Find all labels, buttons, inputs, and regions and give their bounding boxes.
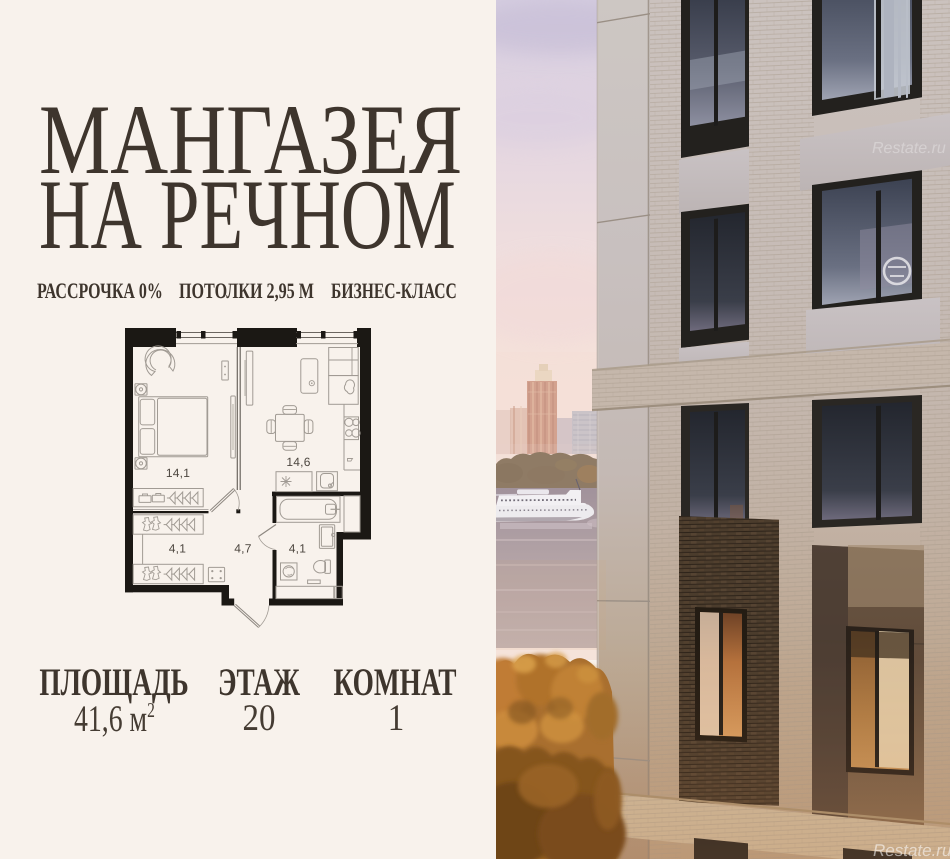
svg-text:4,7: 4,7	[234, 542, 252, 556]
svg-text:14,1: 14,1	[166, 466, 190, 480]
svg-text:14,6: 14,6	[286, 455, 310, 469]
svg-text:4,1: 4,1	[169, 542, 187, 556]
svg-text:4,1: 4,1	[289, 542, 307, 556]
svg-text:Restate.ru: Restate.ru	[873, 841, 950, 859]
svg-text:Restate.ru: Restate.ru	[872, 140, 946, 157]
